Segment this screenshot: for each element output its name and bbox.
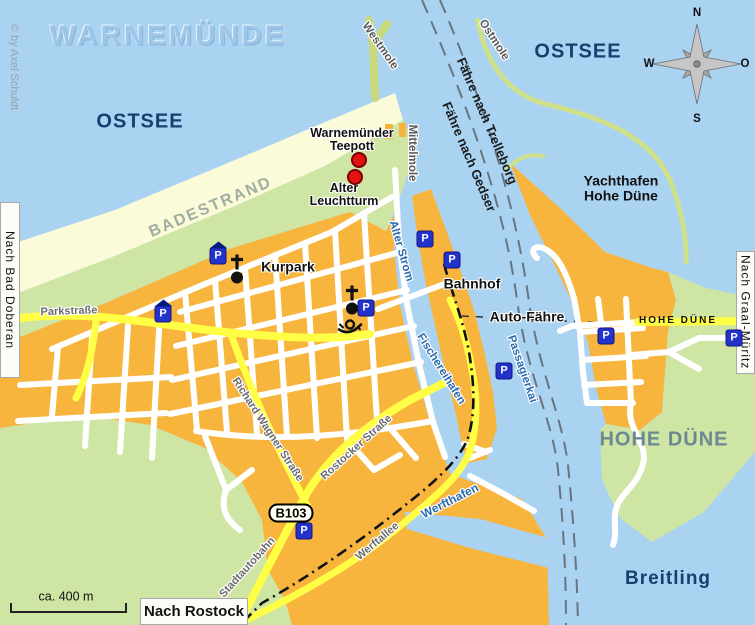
parking-roof-icon: [154, 300, 172, 307]
exit-strip-graal-mueritz: Nach Graal-Müritz: [736, 251, 755, 374]
parking-roof-icon: [209, 242, 227, 249]
parking-icon: P: [297, 524, 312, 539]
church-icon: [344, 285, 360, 322]
teepott-marker-icon: [351, 152, 367, 168]
parking-icon: P: [599, 329, 614, 344]
parking-icon: P: [359, 301, 374, 316]
warnemuende-city-map: WARNEMÜNDE © by Axel Schuldt OSTSEE OSTS…: [0, 0, 755, 625]
parking-icon: P: [418, 232, 433, 247]
parking-icon: P: [211, 249, 226, 264]
leuchtturm-marker-icon: [347, 169, 363, 185]
parking-icon: P: [727, 331, 742, 346]
exit-box-rostock: Nach Rostock: [140, 598, 248, 625]
post-horn-icon: [337, 318, 363, 341]
parking-icon: P: [445, 253, 460, 268]
parking-icon: P: [156, 307, 171, 322]
church-icon: [229, 254, 245, 291]
exit-strip-bad-doberan: Nach Bad Doberan: [0, 202, 20, 378]
parking-icon: P: [497, 364, 512, 379]
road-badge-b103: B103: [268, 504, 313, 523]
map-canvas: [0, 0, 755, 625]
scale-bracket: [10, 603, 127, 613]
compass-rose: [653, 24, 741, 104]
